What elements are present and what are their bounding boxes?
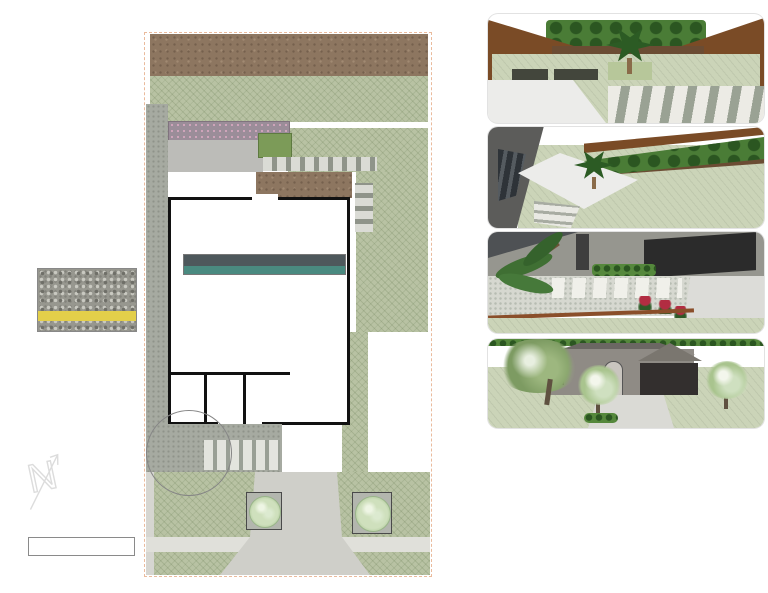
- plant-legend-header-row: [184, 266, 345, 274]
- foundation-shrubs: [592, 264, 656, 276]
- garage-door: [640, 363, 698, 395]
- red-yucca-plant: [638, 296, 652, 310]
- palm-trunk: [627, 58, 632, 74]
- crape-myrtle-canopy: [576, 365, 622, 405]
- crape-myrtle-canopy-left: [249, 496, 281, 528]
- garage-door: [644, 232, 756, 278]
- stepping-stone-column: [355, 183, 373, 232]
- graphic-scale-bar: [28, 537, 135, 556]
- stepping-stone-path: [263, 157, 377, 171]
- planter-box: [512, 69, 548, 80]
- plant-legend: [183, 254, 346, 275]
- ruler-icon: [38, 311, 136, 321]
- lawn: [488, 318, 764, 333]
- plant-legend-title-bar: [184, 255, 345, 266]
- crape-myrtle-canopy-right: [355, 496, 391, 532]
- large-tree-canopy: [496, 339, 580, 393]
- house-door-gap-top: [252, 194, 278, 202]
- planter-box-2: [554, 69, 598, 80]
- base-shrubs: [584, 413, 618, 423]
- landscape-plan-sheet: { "callouts": [ {"id":"cherry-laurel","t…: [0, 0, 768, 593]
- render-front-elevation: [488, 339, 764, 428]
- house-outline: [168, 197, 350, 425]
- stepping-stones: [552, 278, 682, 298]
- left-tree-well: [246, 492, 282, 530]
- palm-trunk: [592, 177, 596, 189]
- pindo-palm-bed: [258, 133, 292, 158]
- left-concrete-strip: [146, 472, 154, 575]
- crape-myrtle-canopy-2: [704, 361, 750, 399]
- backyard-lawn: [150, 76, 428, 122]
- patio-top: [168, 140, 263, 172]
- driveway: [684, 276, 764, 322]
- north-arrow-icon: N: [16, 444, 72, 510]
- gravel-sample-photo: [37, 268, 137, 332]
- house-interior-wall-v2: [243, 372, 246, 425]
- render-backyard-patio: [488, 127, 764, 228]
- paver-path: [608, 86, 764, 123]
- entry-door: [576, 234, 589, 270]
- house-interior-wall-h: [168, 372, 290, 375]
- right-tree-well: [352, 492, 392, 534]
- backyard-mulch-bed: [150, 34, 428, 78]
- render-front-entry: [488, 232, 764, 333]
- palo-verde-canopy-outline: [146, 410, 232, 496]
- render-backyard-overview: [488, 14, 764, 123]
